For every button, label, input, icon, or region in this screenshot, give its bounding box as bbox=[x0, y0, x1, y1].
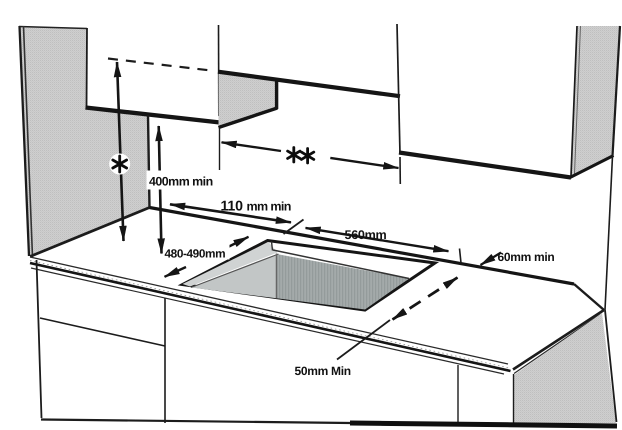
svg-text:50mm Min: 50mm Min bbox=[295, 364, 351, 378]
svg-text:110: 110 bbox=[221, 199, 244, 215]
svg-text:60mm min: 60mm min bbox=[498, 250, 555, 264]
svg-text:480-490mm: 480-490mm bbox=[165, 247, 226, 261]
svg-text:560mm: 560mm bbox=[345, 228, 387, 242]
svg-text:mm min: mm min bbox=[247, 200, 291, 214]
svg-text:400mm min: 400mm min bbox=[149, 175, 213, 189]
